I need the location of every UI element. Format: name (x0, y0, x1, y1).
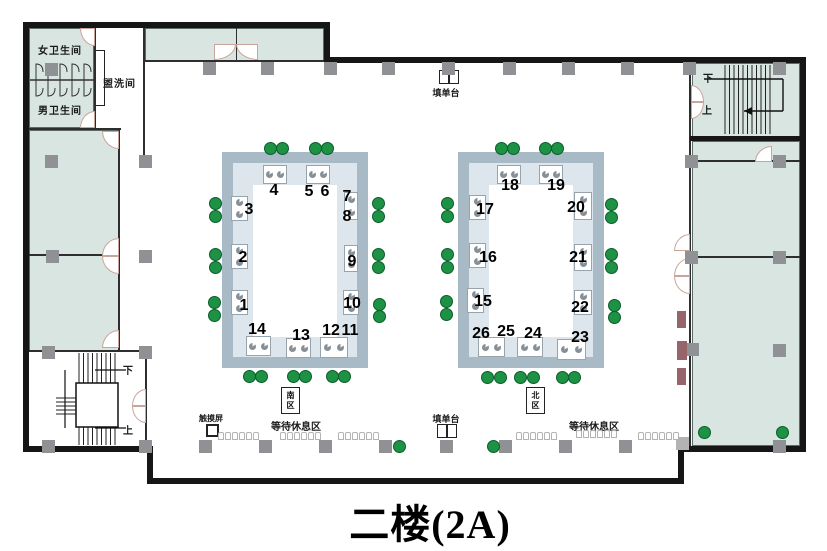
visitor-seat-dot (608, 299, 621, 312)
visitor-seat-dot (372, 210, 385, 223)
form-counter-bottom-unit (437, 424, 447, 438)
waiting-chair (597, 430, 603, 438)
waiting-chair (280, 432, 286, 440)
pillar (499, 440, 512, 453)
visitor-seat-dot (605, 211, 618, 224)
room-area (29, 130, 119, 351)
chair-icon (309, 171, 316, 178)
chair-icon (494, 344, 501, 351)
form-counter-bottom-label: 填单台 (424, 412, 468, 425)
waiting-chair-row (638, 432, 679, 440)
touch-screen-label: 触摸屏 (193, 413, 229, 424)
visitor-seat-dot (372, 248, 385, 261)
visitor-seat-dot (393, 440, 406, 453)
visitor-seat-dot (605, 248, 618, 261)
waiting-chair (345, 432, 351, 440)
waiting-chair (516, 432, 522, 440)
service-desk (246, 336, 271, 356)
window-number: 11 (342, 323, 359, 339)
visitor-seat-dot (605, 261, 618, 274)
visitor-seat-dot (440, 308, 453, 321)
window-number: 26 (472, 326, 490, 342)
pillar (139, 155, 152, 168)
pillar (42, 440, 55, 453)
waiting-chair (352, 432, 358, 440)
form-counter-top-label: 填单台 (424, 86, 468, 99)
toilet-stalls-drawing (30, 58, 94, 102)
pillar (683, 62, 696, 75)
visitor-seat-dot (608, 311, 621, 324)
waiting-chair-row (218, 432, 259, 440)
chair-icon (289, 345, 296, 352)
visitor-seat-dot (776, 426, 789, 439)
cabinet-block (677, 368, 686, 385)
pillar (139, 250, 152, 263)
pillar (203, 62, 216, 75)
visitor-seat-dot (372, 197, 385, 210)
waiting-chair (652, 432, 658, 440)
pillar (440, 440, 453, 453)
window-number: 1 (240, 298, 249, 314)
waiting-chair (523, 432, 529, 440)
cabinet-block (677, 341, 687, 360)
pillar (442, 62, 455, 75)
waiting-chair (239, 432, 245, 440)
waiting-chair (287, 432, 293, 440)
chair-icon (236, 211, 243, 218)
visitor-seat-dot (208, 309, 221, 322)
pillar (773, 251, 786, 264)
visitor-seat-dot (276, 142, 289, 155)
wall-segment (678, 446, 806, 452)
window-number: 19 (547, 178, 565, 194)
pillar (559, 440, 572, 453)
waiting-chair (666, 432, 672, 440)
chair-icon (236, 199, 243, 206)
chair-icon (324, 344, 331, 351)
waiting-chair (338, 432, 344, 440)
visitor-seat-dot (373, 310, 386, 323)
waiting-chair (611, 430, 617, 438)
window-number: 6 (321, 184, 330, 200)
visitor-seat-dot (556, 371, 569, 384)
south-zone-char-2: 区 (287, 401, 295, 411)
visitor-seat-dot (209, 210, 222, 223)
pillar (319, 440, 332, 453)
pillar (685, 251, 698, 264)
visitor-seat-dot (209, 197, 222, 210)
counter-core-south (253, 185, 337, 337)
window-number: 8 (343, 209, 352, 225)
waiting-area-left-label: 等待休息区 (266, 418, 326, 433)
waiting-chair (218, 432, 224, 440)
visitor-seat-dot (243, 370, 256, 383)
window-number: 9 (348, 254, 357, 270)
waiting-chair-row (280, 432, 321, 440)
waiting-chair (232, 432, 238, 440)
form-counter-bottom-unit (447, 424, 457, 438)
visitor-seat-dot (440, 295, 453, 308)
visitor-seat-dot (255, 370, 268, 383)
visitor-seat-dot (481, 371, 494, 384)
waiting-chair (659, 432, 665, 440)
window-number: 14 (248, 322, 266, 338)
window-number: 5 (305, 184, 314, 200)
chair-icon (533, 344, 540, 351)
pillar (45, 63, 58, 76)
window-number: 7 (343, 189, 352, 205)
south-zone-sign: 南 区 (281, 387, 300, 414)
chair-icon (320, 171, 327, 178)
visitor-seat-dot (321, 142, 334, 155)
window-number: 25 (497, 324, 515, 340)
waiting-chair (225, 432, 231, 440)
pillar (382, 62, 395, 75)
wall-segment (147, 478, 684, 484)
chair-icon (301, 345, 308, 352)
waiting-chair (359, 432, 365, 440)
visitor-seat-dot (551, 142, 564, 155)
chair-icon (249, 343, 256, 350)
window-number: 2 (239, 250, 248, 266)
visitor-seat-dot (441, 197, 454, 210)
visitor-seat-dot (568, 371, 581, 384)
waiting-chair (576, 430, 582, 438)
window-number: 20 (567, 200, 585, 216)
pillar (46, 250, 59, 263)
visitor-seat-dot (514, 371, 527, 384)
window-number: 10 (343, 296, 361, 312)
counter-core-north (489, 185, 573, 337)
waiting-chair (308, 432, 314, 440)
wall-segment (23, 22, 330, 28)
visitor-seat-dot (494, 371, 507, 384)
window-number: 24 (524, 326, 542, 342)
visitor-seat-dot (372, 261, 385, 274)
waiting-chair (551, 432, 557, 440)
stairs-bl-down-label: 下 (123, 362, 133, 377)
floor-title: 二楼(2A) (60, 492, 800, 550)
pillar (773, 62, 786, 75)
window-number: 3 (245, 202, 254, 218)
waiting-chair (246, 432, 252, 440)
pillar (42, 346, 55, 359)
waiting-chair (645, 432, 651, 440)
pillar (199, 440, 212, 453)
visitor-seat-dot (338, 370, 351, 383)
pillar (621, 62, 634, 75)
pillar (773, 344, 786, 357)
window-number: 23 (571, 330, 589, 346)
visitor-seat-dot (208, 296, 221, 309)
waiting-chair-row (576, 430, 617, 438)
wall-segment-thin (143, 60, 326, 62)
service-desk (320, 337, 348, 358)
pillar (379, 440, 392, 453)
north-zone-char-1: 北 (532, 391, 540, 401)
pillar (259, 440, 272, 453)
waiting-chair (638, 432, 644, 440)
pillar (773, 155, 786, 168)
wall-segment (23, 22, 29, 452)
waiting-chair (673, 432, 679, 440)
waiting-chair (294, 432, 300, 440)
pillar (45, 155, 58, 168)
women-restroom-label: 女卫生间 (38, 42, 82, 57)
cabinet-block (677, 311, 686, 328)
washroom-label: 盥洗间 (103, 75, 136, 90)
wall-segment-thin (29, 128, 121, 130)
south-zone-char-1: 南 (287, 391, 295, 401)
waiting-chair (583, 430, 589, 438)
visitor-seat-dot (299, 370, 312, 383)
visitor-seat-dot (264, 142, 277, 155)
waiting-chair (544, 432, 550, 440)
waiting-chair-row (516, 432, 557, 440)
chair-icon (337, 344, 344, 351)
wall-segment (800, 57, 806, 452)
pillar (324, 62, 337, 75)
wall-segment-thin (143, 28, 145, 162)
window-number: 12 (322, 323, 340, 339)
window-number: 13 (292, 328, 310, 344)
waiting-chair (373, 432, 379, 440)
chair-icon (575, 346, 582, 353)
waiting-chair-row (338, 432, 379, 440)
room-area (692, 141, 800, 446)
pillar (562, 62, 575, 75)
visitor-seat-dot (527, 371, 540, 384)
pillar (139, 440, 152, 453)
waiting-chair (537, 432, 543, 440)
north-zone-char-2: 区 (532, 401, 540, 411)
visitor-seat-dot (309, 142, 322, 155)
visitor-seat-dot (487, 440, 500, 453)
service-desk (306, 165, 330, 184)
window-number: 15 (474, 294, 492, 310)
pillar (773, 440, 786, 453)
visitor-seat-dot (539, 142, 552, 155)
pillar (685, 155, 698, 168)
chair-icon (261, 343, 268, 350)
chair-icon (521, 344, 528, 351)
visitor-seat-dot (209, 248, 222, 261)
pillar (619, 440, 632, 453)
visitor-seat-dot (698, 426, 711, 439)
visitor-seat-dot (495, 142, 508, 155)
chair-icon (277, 171, 284, 178)
north-zone-sign: 北 区 (526, 387, 545, 414)
waiting-chair (253, 432, 259, 440)
chair-icon (266, 171, 273, 178)
window-number: 18 (501, 178, 519, 194)
chair-icon (561, 346, 568, 353)
waiting-chair (315, 432, 321, 440)
chair-icon (482, 344, 489, 351)
waiting-chair (366, 432, 372, 440)
door-arc (674, 234, 690, 251)
men-restroom-label: 男卫生间 (38, 102, 82, 117)
visitor-seat-dot (507, 142, 520, 155)
door-arc (674, 276, 690, 294)
pillar (261, 62, 274, 75)
visitor-seat-dot (287, 370, 300, 383)
pillar (139, 346, 152, 359)
wall-segment (690, 136, 806, 141)
visitor-seat-dot (441, 210, 454, 223)
window-number: 16 (479, 250, 497, 266)
window-number: 22 (571, 300, 589, 316)
visitor-seat-dot (209, 261, 222, 274)
pillar (503, 62, 516, 75)
waiting-chair (590, 430, 596, 438)
window-number: 21 (569, 250, 587, 266)
stairs-bl-up-label: 上 (123, 422, 133, 437)
waiting-chair (301, 432, 307, 440)
stairs-tr-down-label: 下 (703, 70, 713, 85)
visitor-seat-dot (441, 261, 454, 274)
pillar (686, 343, 699, 356)
visitor-seat-dot (326, 370, 339, 383)
floor-plan-canvas: 女卫生间 男卫生间 盥洗间 填单台 填单台 触摸屏 等待休息区 等待休息区 下 … (0, 0, 827, 551)
visitor-seat-dot (605, 198, 618, 211)
window-number: 17 (476, 202, 494, 218)
visitor-seat-dot (441, 248, 454, 261)
window-number: 4 (270, 183, 279, 199)
waiting-chair (604, 430, 610, 438)
visitor-seat-dot (373, 298, 386, 311)
waiting-chair (530, 432, 536, 440)
